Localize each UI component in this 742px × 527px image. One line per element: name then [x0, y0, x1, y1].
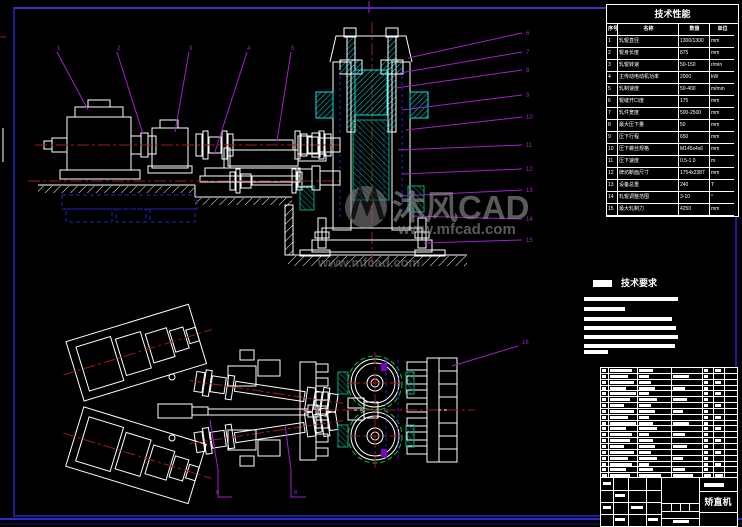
callout-number: 15 [526, 238, 533, 244]
spec-cell: 设备总重 [618, 180, 679, 192]
plan-stand [300, 352, 475, 468]
notes-line [584, 335, 678, 339]
motor-side [44, 100, 140, 179]
spec-cell: 15 [607, 204, 618, 216]
spec-cell: T [710, 180, 734, 192]
spec-cell: 12 [607, 168, 618, 180]
spec-cell: mm [710, 36, 734, 48]
spec-cell: 辊缝开口度 [618, 96, 679, 108]
spec-cell: r/min [710, 60, 734, 72]
watermark-url: www.mfcad.com [397, 221, 516, 238]
plan-spindle-lower [187, 406, 344, 457]
notes-line [584, 326, 676, 330]
notes-line [584, 317, 672, 321]
spec-cell: 轧制速度 [618, 84, 679, 96]
spec-cell: mm [710, 144, 734, 156]
title-block: 矫直机 [600, 477, 738, 527]
drawing-title: 矫直机 [700, 492, 736, 512]
spec-cell: 轧件宽度 [618, 108, 679, 120]
spec-cell: 压下行程 [618, 132, 679, 144]
spec-cell: 9 [607, 132, 618, 144]
spec-cell: 10 [607, 144, 618, 156]
spec-cell: 压下速度 [618, 156, 679, 168]
callout-number: 16 [522, 340, 529, 346]
spec-cell: 4 [607, 72, 618, 84]
spec-cell: 7 [607, 108, 618, 120]
spec-cell: mm [710, 48, 734, 60]
spec-cell: mm [710, 108, 734, 120]
callout-number: 6 [526, 31, 530, 37]
bom-table [600, 367, 738, 479]
callout-number: 3 [189, 46, 193, 52]
spec-cell: 1 [607, 36, 618, 48]
spec-cell: 名称 [618, 24, 679, 36]
plan-view [54, 300, 475, 508]
callout-number: 11 [526, 143, 533, 149]
callout-number: B [216, 490, 220, 496]
notes-line [584, 297, 678, 301]
callout-number: 1 [57, 46, 61, 52]
spec-cell: 轧辊转速 [618, 60, 679, 72]
cad-screenshot: 12345678910111213141516BB 沐风CAD www.mfca… [0, 0, 742, 527]
spec-cell: mm [710, 204, 734, 216]
watermark-url-secondary: www.mfcad.com [317, 255, 420, 270]
spec-cell: 240 [679, 180, 710, 192]
spec-cell: 8 [607, 120, 618, 132]
gearbox-side [148, 120, 192, 173]
callout-number: 4 [247, 46, 251, 52]
notes-line [584, 344, 675, 348]
callout-number: 5 [291, 46, 295, 52]
callout-number: 9 [526, 93, 530, 99]
spec-cell: 轧辊调整范围 [618, 192, 679, 204]
spec-cell: 1754x2387 [679, 168, 710, 180]
callout-number: 10 [526, 115, 533, 121]
spec-cell: 数值 [679, 24, 710, 36]
spec-cell: 压下螺丝规格 [618, 144, 679, 156]
spec-cell: m/min [710, 84, 734, 96]
spec-cell: 牌坊断面尺寸 [618, 168, 679, 180]
plan-motor-upper [55, 300, 221, 405]
spec-cell: 50-400 [679, 84, 710, 96]
spec-cell: 13 [607, 180, 618, 192]
spec-cell: 最大压下量 [618, 120, 679, 132]
spec-cell: 875 [679, 48, 710, 60]
spec-cell: 50-150 [679, 60, 710, 72]
spec-table-title: 技术性能 [607, 5, 738, 24]
notes-line [584, 350, 608, 354]
spec-cell: 14 [607, 192, 618, 204]
spec-cell: 6 [607, 96, 618, 108]
spec-cell: 50 [679, 120, 710, 132]
spec-cell: M145x4x6 [679, 144, 710, 156]
spec-cell: m [710, 156, 734, 168]
callout-number: 12 [526, 167, 533, 173]
side-view [28, 100, 467, 266]
spec-cell: 序号 [607, 24, 618, 36]
callout-number: 7 [526, 50, 530, 56]
notes-title: 技术要求 [621, 276, 661, 288]
spec-cell: 单位 [710, 24, 734, 36]
spec-cell: 最大轧制力 [618, 204, 679, 216]
spec-cell: 3 [607, 60, 618, 72]
spec-cell: 3-10 [679, 192, 710, 204]
callout-number: 2 [117, 46, 121, 52]
spec-cell: 辊身长度 [618, 48, 679, 60]
spec-cell: 5 [607, 84, 618, 96]
spec-cell: 主传动电动机功率 [618, 72, 679, 84]
spec-table: 技术性能 序号名称数值单位1轧辊直径1300/1300mm2辊身长度875mm3… [606, 4, 739, 217]
spec-cell: 轧辊直径 [618, 36, 679, 48]
spec-cell: 2 [607, 48, 618, 60]
notes-line [584, 307, 625, 311]
spec-cell: mm [710, 132, 734, 144]
callout-number: B [294, 490, 298, 496]
spec-cell: mm [710, 168, 734, 180]
spec-cell: 175 [679, 96, 710, 108]
spec-cell: 650 [679, 132, 710, 144]
spec-cell: 500-2500 [679, 108, 710, 120]
spec-cell: kW [710, 72, 734, 84]
plan-motor-lower [54, 403, 220, 508]
plan-spindle-upper [187, 368, 344, 419]
spec-cell: 0.5-1.0 [679, 156, 710, 168]
spec-cell: 4250 [679, 204, 710, 216]
spec-cell: mm [710, 120, 734, 132]
spec-cell: 11 [607, 156, 618, 168]
spec-cell: 2000 [679, 72, 710, 84]
spec-cell: 1300/1300 [679, 36, 710, 48]
spec-cell: ° [710, 192, 734, 204]
spec-cell: mm [710, 96, 734, 108]
notes-label-bar [593, 280, 612, 287]
callout-number: 8 [526, 68, 530, 74]
